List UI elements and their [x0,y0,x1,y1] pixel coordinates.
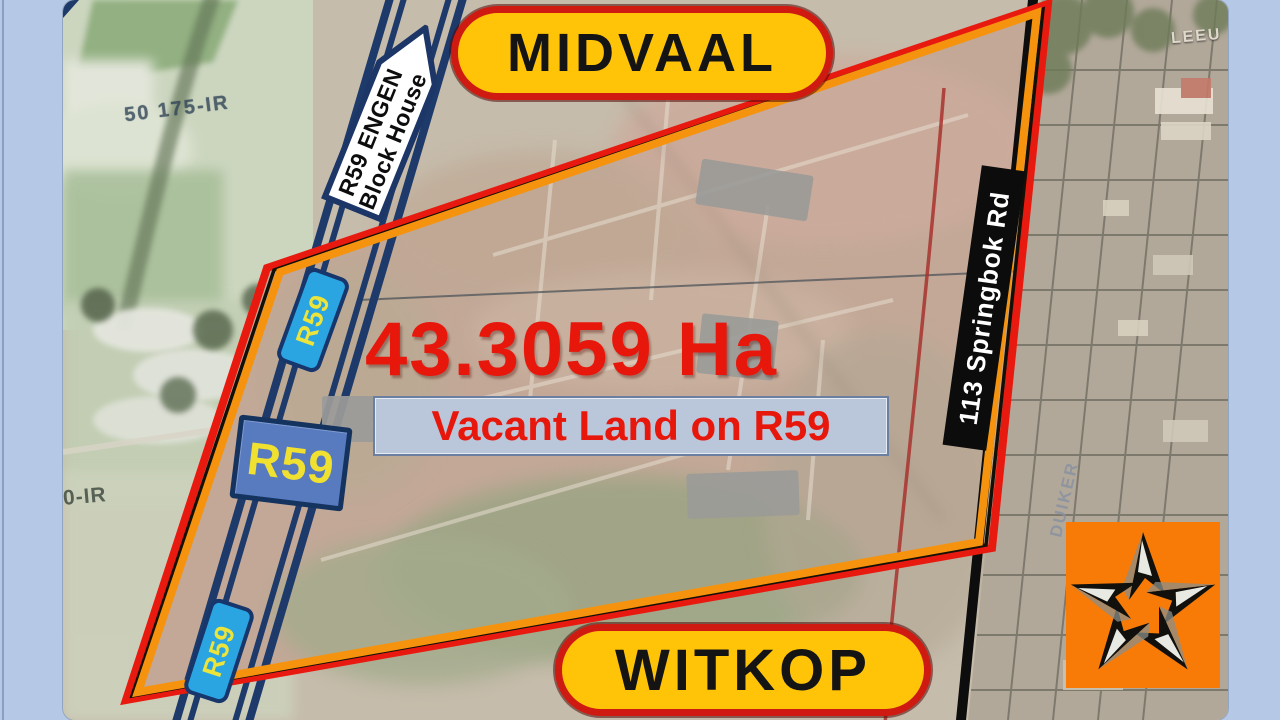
aerial-map: 50 175-IR 0-IR LEEU DUIKER MIDVAAL WITKO… [63,0,1228,720]
slide: { "slide": { "region_top": "MIDVAAL", "r… [0,0,1280,720]
parcel-label-lower: 0-IR [63,483,108,511]
region-pill-midvaal: MIDVAAL [451,6,833,100]
agency-logo [1066,522,1220,688]
redaction-blob [686,470,800,519]
area-headline: 43.3059 Ha [365,306,778,393]
r59-route-sign: R59 [229,414,352,511]
listing-title-box: Vacant Land on R59 [373,396,889,456]
region-pill-witkop: WITKOP [555,624,931,716]
star-icon [1066,522,1220,688]
